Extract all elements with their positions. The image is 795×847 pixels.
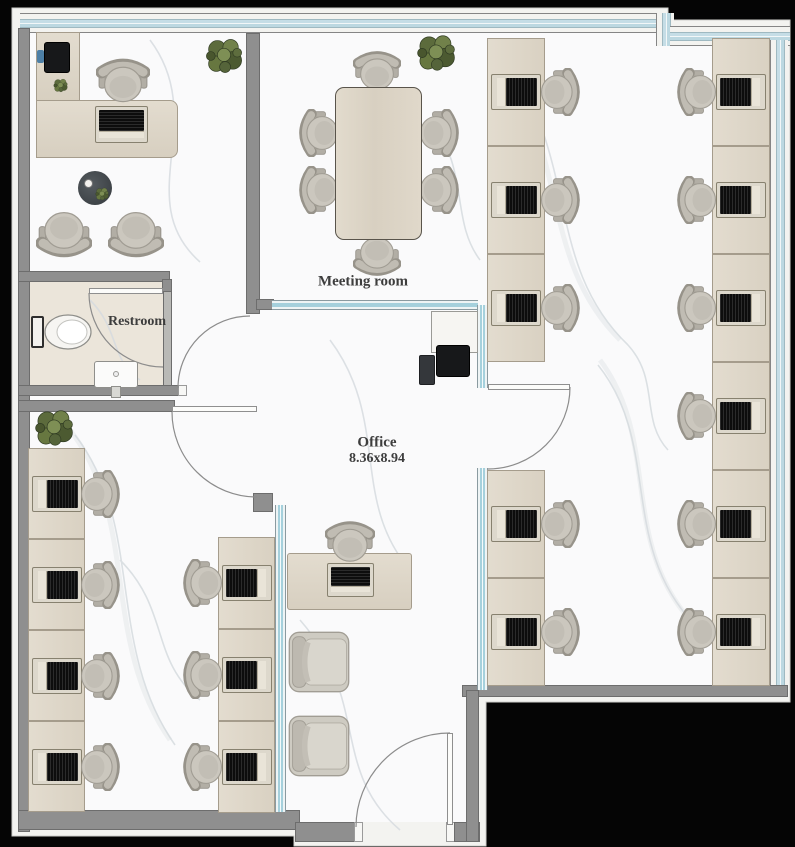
laptop — [491, 290, 541, 326]
laptop — [32, 658, 82, 694]
copier — [436, 345, 470, 377]
laptop — [491, 506, 541, 542]
laptop — [32, 476, 82, 512]
office-chair — [75, 470, 123, 518]
sink-drain — [113, 371, 119, 377]
coffee-cup — [84, 179, 93, 188]
laptop — [491, 614, 541, 650]
office-chair — [674, 608, 722, 656]
meeting-table — [335, 87, 422, 240]
guest-armchair — [108, 205, 164, 261]
office-chair — [535, 608, 583, 656]
laptop — [716, 506, 766, 542]
desk-plant — [52, 77, 69, 94]
office-chair — [535, 284, 583, 332]
office-chair — [674, 284, 722, 332]
laptop — [491, 182, 541, 218]
copier-side-unit — [419, 355, 435, 385]
table-plant — [94, 186, 110, 202]
laptop — [327, 563, 374, 597]
office-chair — [75, 561, 123, 609]
guest-armchair — [36, 205, 92, 261]
office-chair — [180, 651, 228, 699]
laptop — [32, 567, 82, 603]
exec-laptop — [95, 106, 148, 143]
office-chair — [674, 392, 722, 440]
office-chair — [674, 500, 722, 548]
laptop — [716, 182, 766, 218]
lounge-armchair — [286, 711, 352, 781]
label-office-dimensions: 8.36x8.94 — [349, 451, 405, 467]
office-chair — [674, 68, 722, 116]
laptop — [222, 657, 272, 693]
toilet-tank — [31, 316, 44, 348]
laptop — [491, 74, 541, 110]
laptop — [222, 749, 272, 785]
desk-accessory — [37, 50, 44, 63]
laptop — [716, 614, 766, 650]
label-restroom: Restroom — [108, 314, 166, 330]
office-chair — [180, 559, 228, 607]
toilet-bowl — [44, 313, 94, 351]
floor-plan: Meeting room Restroom Office 8.36x8.94 — [0, 0, 795, 847]
office-chair — [75, 652, 123, 700]
lounge-armchair — [286, 627, 352, 697]
laptop — [716, 290, 766, 326]
laptop — [716, 398, 766, 434]
label-office: Office — [357, 435, 396, 452]
office-chair — [180, 743, 228, 791]
plant-exec-corner — [202, 34, 246, 78]
office-chair — [674, 176, 722, 224]
printer — [44, 42, 70, 73]
office-chair — [325, 518, 375, 568]
plant-left-office — [31, 405, 77, 451]
office-chair — [535, 176, 583, 224]
exec-chair — [96, 55, 150, 109]
laptop — [32, 749, 82, 785]
office-chair — [75, 743, 123, 791]
plant-meeting-corner — [413, 30, 459, 76]
office-chair — [535, 500, 583, 548]
laptop — [222, 565, 272, 601]
sink-faucet — [111, 386, 121, 398]
office-chair — [535, 68, 583, 116]
laptop — [716, 74, 766, 110]
